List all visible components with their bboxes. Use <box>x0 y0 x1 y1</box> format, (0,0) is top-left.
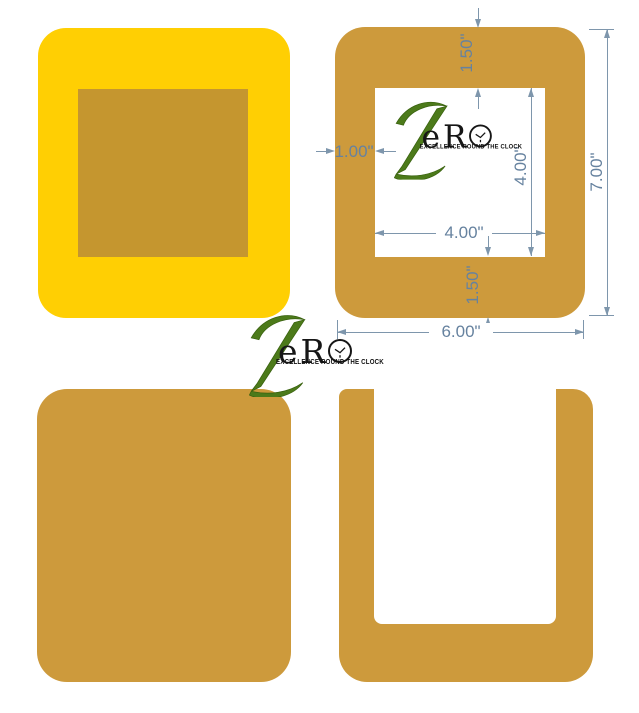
arrow-up-icon <box>604 29 610 38</box>
zero-logo-center: eR EXCELLENCE ROUND THE CLOCK <box>249 309 369 399</box>
product-diagram-canvas: 1.50" 1.00" 4.00" 4.00" 1.50" 6.00" <box>0 0 639 713</box>
arrow-down-icon <box>604 307 610 316</box>
logo-tagline: EXCELLENCE ROUND THE CLOCK <box>276 359 384 366</box>
dim-extension-line <box>589 315 614 316</box>
dim-extension-line <box>589 29 614 30</box>
zero-logo-watermark: eR EXCELLENCE ROUND THE CLOCK <box>394 96 508 182</box>
logo-tagline: EXCELLENCE ROUND THE CLOCK <box>420 144 523 151</box>
dim-line <box>607 29 608 316</box>
dim-label-total-height: 7.00" <box>588 150 606 194</box>
